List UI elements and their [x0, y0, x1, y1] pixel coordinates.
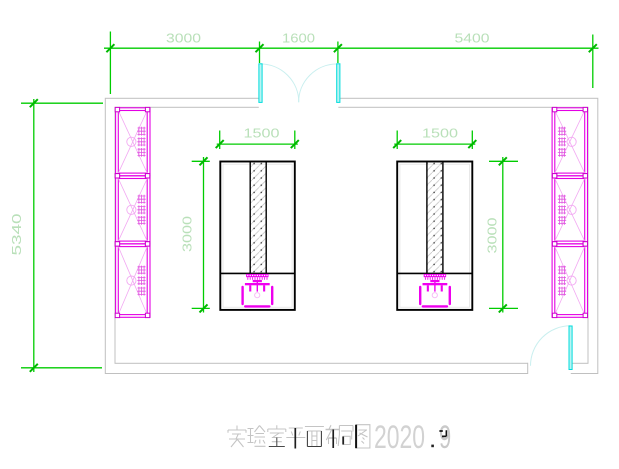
svg-text:3000: 3000 — [485, 218, 500, 254]
svg-text:2020: 2020 — [374, 419, 425, 455]
svg-text:1600: 1600 — [282, 31, 315, 46]
svg-text:5340: 5340 — [9, 214, 24, 256]
svg-text:3000: 3000 — [180, 216, 195, 252]
svg-text:1500: 1500 — [422, 126, 458, 141]
svg-text:3000: 3000 — [166, 31, 201, 46]
svg-text:5400: 5400 — [455, 31, 490, 46]
svg-text:1500: 1500 — [244, 126, 280, 141]
